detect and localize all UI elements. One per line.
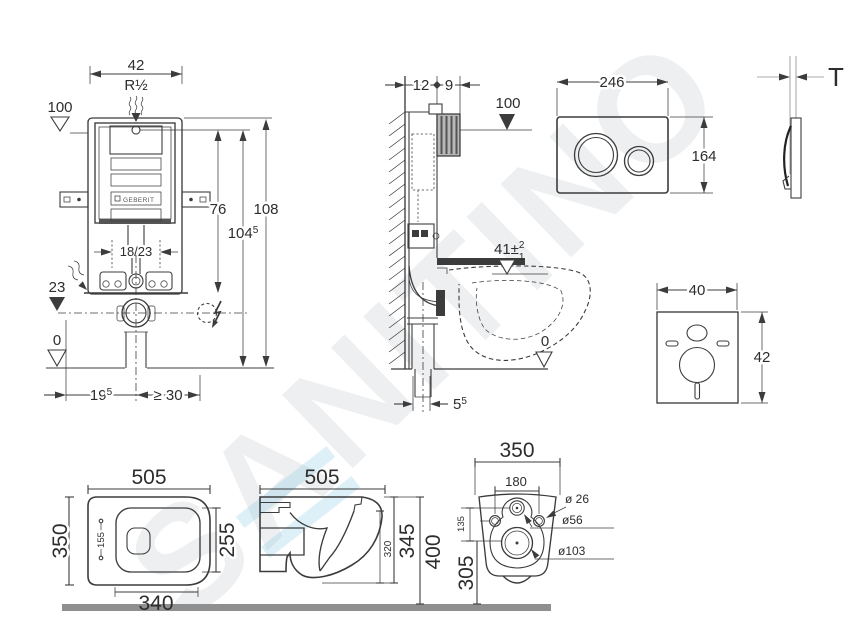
flush-plate-front-view: 246 164 (557, 74, 717, 193)
pad-width-label: 40 (689, 282, 706, 299)
cistern-side-view: 12 9 100 (385, 76, 590, 413)
level-0-label: 0 (53, 332, 61, 349)
outlet-gasket (436, 290, 445, 316)
pan-side-total-height-label: 400 (422, 534, 445, 569)
side-level-100-mark (499, 114, 515, 130)
side-level-0-mark (536, 352, 552, 367)
flush-plate-side-view: T (757, 56, 844, 198)
pad-height-label: 42 (754, 349, 771, 366)
level-23-mark (49, 297, 65, 311)
pan-rear-width-label: 350 (499, 439, 534, 462)
wall-bracket-left (60, 192, 88, 207)
level-100-label: 100 (47, 99, 72, 116)
side-level-0-label: 0 (541, 333, 549, 350)
pan-top-seat-label: 340 (138, 592, 173, 615)
dia56-label: ø56 (562, 513, 583, 527)
mounting-foot-left (100, 272, 126, 290)
pan-rear-view: 350 180 ø 26 ø56 ø103 (455, 439, 614, 604)
plate-width-label: 246 (599, 74, 624, 91)
pad-body (657, 312, 738, 403)
flush-button-large (575, 134, 618, 177)
dim-5-label: 55 (453, 396, 467, 413)
pan-side-width-label: 505 (304, 466, 339, 489)
dia103-label: ø103 (558, 544, 586, 558)
flush-button-small (625, 147, 654, 176)
pan-rear-holespan-label: 180 (505, 474, 527, 489)
mounting-foot-right (146, 272, 172, 290)
pan-dashed-outline (449, 266, 590, 361)
pan-top-width-label: 505 (131, 466, 166, 489)
sound-insulation-pad-view: 40 42 (657, 282, 770, 403)
dim-104-label: 1045 (228, 225, 259, 242)
pan-top-view: 505 350 155 255 340 (49, 466, 239, 615)
dim-12-label: 12 (413, 77, 430, 94)
cistern-width-label: 42 (128, 57, 145, 74)
pan-rear-305-label: 305 (455, 555, 478, 590)
pan-side-view: 505 320 345 400 (260, 466, 445, 604)
dim-9-label: 9 (445, 77, 453, 94)
pan-top-inner-label: 155 (96, 532, 107, 548)
tank-sill (99, 219, 171, 224)
pan-rear-135-label: 135 (456, 516, 467, 532)
brand-label: GEBERIT (123, 197, 154, 204)
level-100-mark (51, 117, 69, 131)
inlet-thread-label: R½ (124, 77, 148, 94)
dim-19-label: 195 (90, 387, 113, 404)
level-0-mark (48, 350, 66, 366)
dim-76-label: 76 (210, 201, 227, 218)
pan-side-rim-height-label: 320 (383, 540, 394, 557)
flush-plate-body (557, 117, 668, 193)
pan-top-rim-label: 255 (216, 522, 239, 557)
technical-drawing-page: SANITINO 42 R½ 100 (0, 0, 851, 630)
dim-108-label: 108 (253, 201, 278, 218)
plate-profile (791, 118, 801, 198)
pan-side-outline (260, 497, 382, 578)
pan-top-depth-label: 350 (49, 523, 72, 558)
wall-hatch (389, 76, 405, 369)
ground-line (62, 604, 551, 611)
side-level-100-label: 100 (495, 95, 520, 112)
dim-min30-label: ≥ 30 (153, 387, 182, 404)
pan-side-body-height-label: 345 (396, 523, 419, 558)
level-23-label: 23 (49, 279, 66, 296)
plate-thickness-label: T (828, 62, 844, 92)
water-inlet-arrow-icon (68, 261, 87, 290)
pan-rim-level-mark (499, 260, 515, 274)
cistern-front-view: 42 R½ 100 (44, 57, 279, 404)
electrical-connection-icon (198, 301, 222, 328)
plate-height-label: 164 (691, 148, 716, 165)
technical-drawing-canvas: 42 R½ 100 (0, 0, 851, 630)
dia26-label: ø 26 (565, 492, 589, 506)
wall-bracket-right (182, 192, 210, 207)
